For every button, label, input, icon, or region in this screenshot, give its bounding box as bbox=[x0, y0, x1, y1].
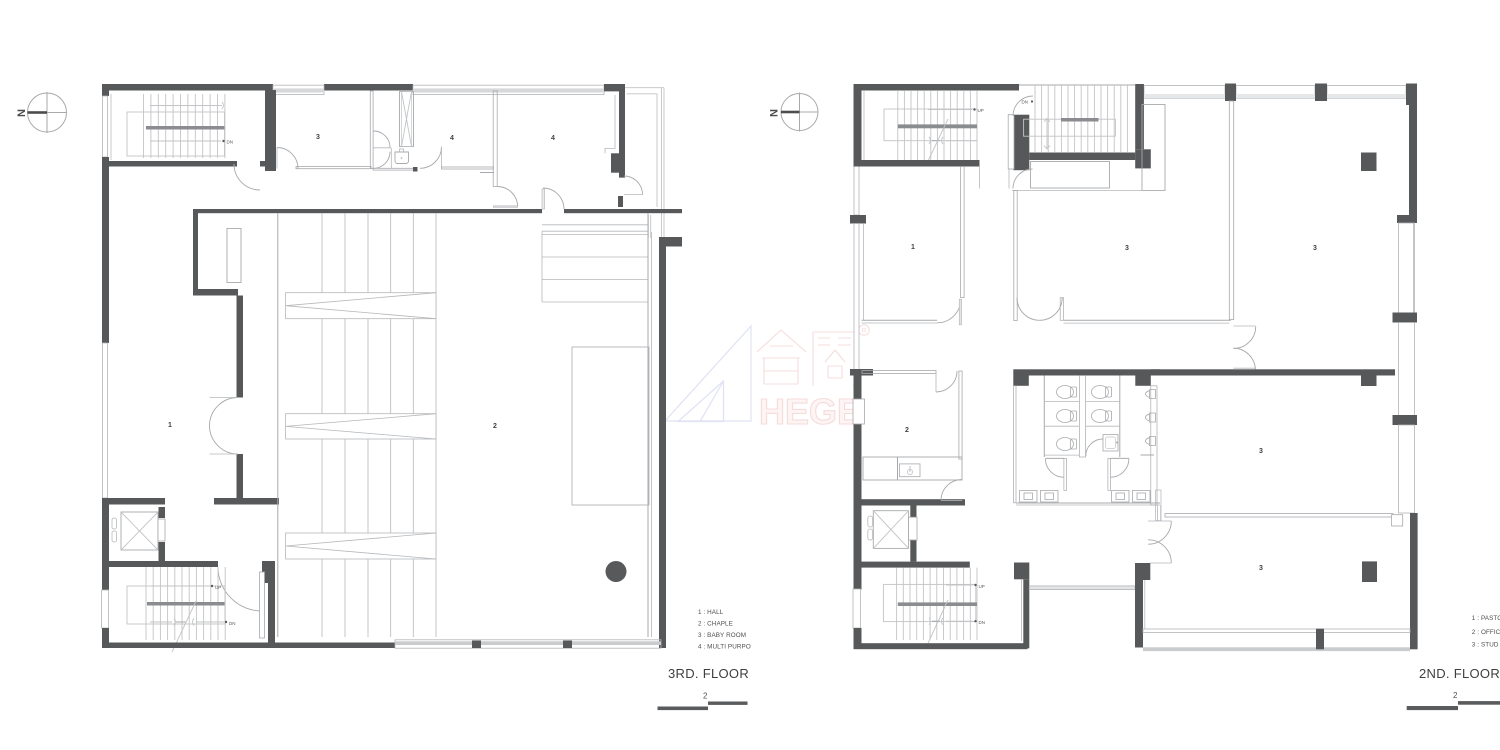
svg-text:DN: DN bbox=[1022, 100, 1029, 105]
svg-text:2ND. FLOOR: 2ND. FLOOR bbox=[1419, 666, 1500, 681]
svg-text:DN: DN bbox=[979, 620, 986, 625]
svg-text:2: 2 bbox=[905, 427, 909, 434]
svg-text:3 : BABY ROOM: 3 : BABY ROOM bbox=[698, 632, 746, 639]
svg-text:1: 1 bbox=[168, 422, 172, 429]
svg-text:N: N bbox=[16, 109, 28, 117]
svg-text:2: 2 bbox=[493, 423, 497, 430]
svg-text:HEGE: HEGE bbox=[759, 391, 861, 432]
svg-text:3: 3 bbox=[1259, 448, 1263, 455]
svg-text:3: 3 bbox=[1313, 245, 1317, 252]
svg-text:3: 3 bbox=[316, 134, 320, 141]
svg-text:N: N bbox=[769, 109, 781, 117]
svg-text:4 : MULTI PURPO: 4 : MULTI PURPO bbox=[698, 644, 751, 651]
svg-text:3: 3 bbox=[1125, 245, 1129, 252]
svg-text:2 : CHAPLE: 2 : CHAPLE bbox=[698, 621, 733, 628]
svg-text:2: 2 bbox=[703, 692, 708, 701]
svg-text:3: 3 bbox=[1259, 565, 1263, 572]
svg-text:1: 1 bbox=[911, 244, 915, 251]
svg-text:4: 4 bbox=[450, 135, 454, 142]
svg-text:DN: DN bbox=[227, 140, 234, 145]
svg-text:DN: DN bbox=[229, 621, 236, 626]
svg-text:UP: UP bbox=[979, 584, 985, 589]
svg-text:UP: UP bbox=[978, 108, 984, 113]
svg-text:2 : OFFIC: 2 : OFFIC bbox=[1472, 629, 1500, 636]
svg-text:R: R bbox=[862, 327, 867, 334]
svg-text:1 : PASTO: 1 : PASTO bbox=[1472, 615, 1500, 622]
svg-text:1 : HALL: 1 : HALL bbox=[698, 609, 724, 616]
svg-text:3RD. FLOOR: 3RD. FLOOR bbox=[668, 666, 749, 681]
svg-text:UP: UP bbox=[215, 585, 221, 590]
svg-text:2: 2 bbox=[1453, 691, 1458, 700]
svg-text:3 : STUD: 3 : STUD bbox=[1472, 642, 1499, 649]
svg-text:4: 4 bbox=[551, 135, 555, 142]
